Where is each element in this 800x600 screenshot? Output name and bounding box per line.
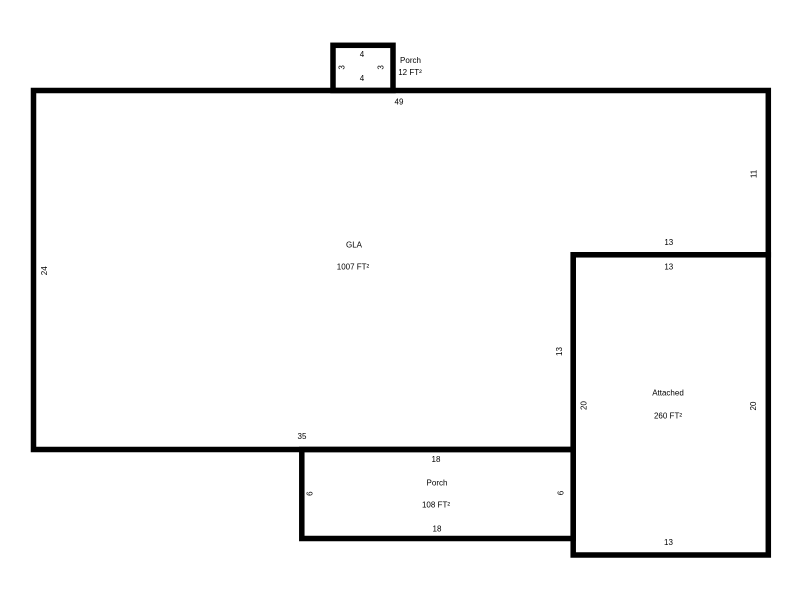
svg-text:24: 24 <box>40 266 49 275</box>
svg-text:4: 4 <box>360 74 365 83</box>
svg-text:3: 3 <box>338 65 347 70</box>
svg-text:12 FT²: 12 FT² <box>398 68 422 77</box>
svg-text:35: 35 <box>298 432 307 441</box>
svg-text:1007 FT²: 1007 FT² <box>337 263 370 272</box>
svg-text:18: 18 <box>432 455 441 464</box>
svg-text:260 FT²: 260 FT² <box>654 412 682 421</box>
svg-text:Attached: Attached <box>652 389 684 398</box>
svg-text:6: 6 <box>306 491 315 496</box>
svg-text:11: 11 <box>750 169 759 178</box>
svg-text:4: 4 <box>360 50 365 59</box>
svg-text:20: 20 <box>749 401 758 410</box>
svg-text:13: 13 <box>664 263 673 272</box>
svg-text:13: 13 <box>664 538 673 547</box>
svg-text:Porch: Porch <box>400 56 421 65</box>
svg-text:Porch: Porch <box>427 479 448 488</box>
svg-text:13: 13 <box>664 238 673 247</box>
svg-text:GLA: GLA <box>346 241 363 250</box>
svg-text:3: 3 <box>377 65 386 70</box>
svg-text:49: 49 <box>395 98 404 107</box>
svg-text:108 FT²: 108 FT² <box>422 501 450 510</box>
svg-text:18: 18 <box>433 524 442 533</box>
svg-text:6: 6 <box>557 490 566 495</box>
svg-text:13: 13 <box>555 347 564 356</box>
svg-text:20: 20 <box>579 401 588 410</box>
